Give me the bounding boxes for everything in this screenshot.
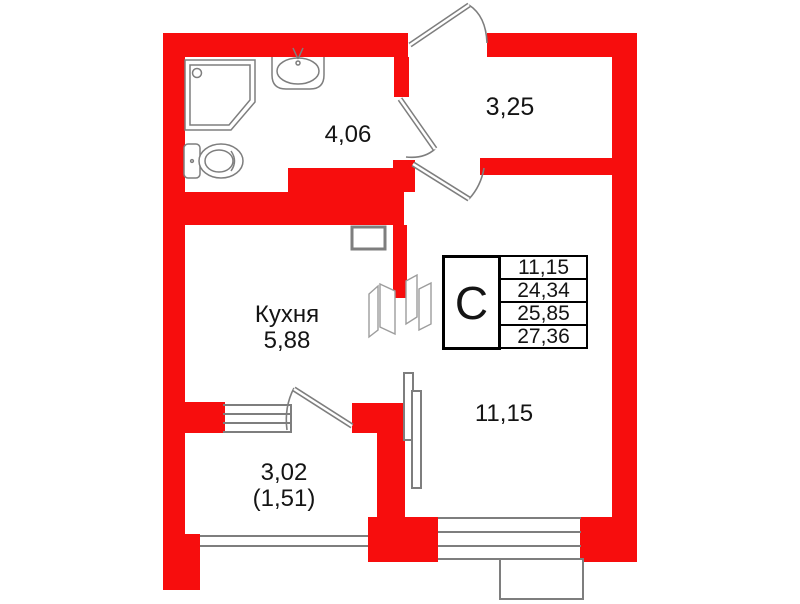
- sink-icon: [272, 48, 324, 89]
- kitchen-label: Кухня 5,88: [255, 302, 319, 354]
- balcony-door: [286, 388, 352, 430]
- unit-area-row: 24,34: [499, 278, 588, 303]
- bathroom-door: [400, 99, 435, 157]
- toilet-icon: [184, 144, 243, 178]
- bathroom-area-value: 4,06: [325, 121, 372, 148]
- unit-area-row: 25,85: [499, 301, 588, 326]
- balcony-area-value: 3,02: [253, 460, 316, 486]
- balcony-label: 3,02 (1,51): [253, 460, 316, 512]
- kitchen-area-value: 5,88: [255, 328, 319, 354]
- unit-type-cell: С: [442, 255, 501, 350]
- sliding-door-panels: [404, 373, 421, 488]
- hallway-area-value: 3,25: [486, 93, 535, 121]
- entrance-door: [410, 5, 487, 45]
- balcony-threshold: [223, 405, 292, 432]
- living-area-value: 11,15: [475, 400, 533, 427]
- balcony-area-note: (1,51): [253, 486, 316, 512]
- vent-shaft: [352, 227, 385, 249]
- living-door: [413, 164, 484, 199]
- living-window: [438, 518, 581, 559]
- floor-plan: 4,06 3,25 Кухня 5,88 11,15 3,02 (1,51) С…: [0, 0, 800, 604]
- balcony-window: [200, 536, 368, 546]
- hallway-area-label: 3,25: [486, 94, 535, 120]
- window-ledge-box: [500, 559, 583, 599]
- folding-door: [369, 275, 431, 337]
- kitchen-name: Кухня: [255, 302, 319, 328]
- unit-info-table: С 11,15 24,34 25,85 27,36: [442, 255, 588, 350]
- unit-areas-column: 11,15 24,34 25,85 27,36: [499, 255, 588, 349]
- living-area-label: 11,15: [475, 401, 533, 427]
- bathroom-area-label: 4,06: [325, 122, 372, 148]
- plan-linework: [0, 0, 800, 604]
- unit-area-row: 11,15: [499, 255, 588, 280]
- unit-area-row: 27,36: [499, 324, 588, 349]
- shower-cabin-icon: [185, 60, 255, 130]
